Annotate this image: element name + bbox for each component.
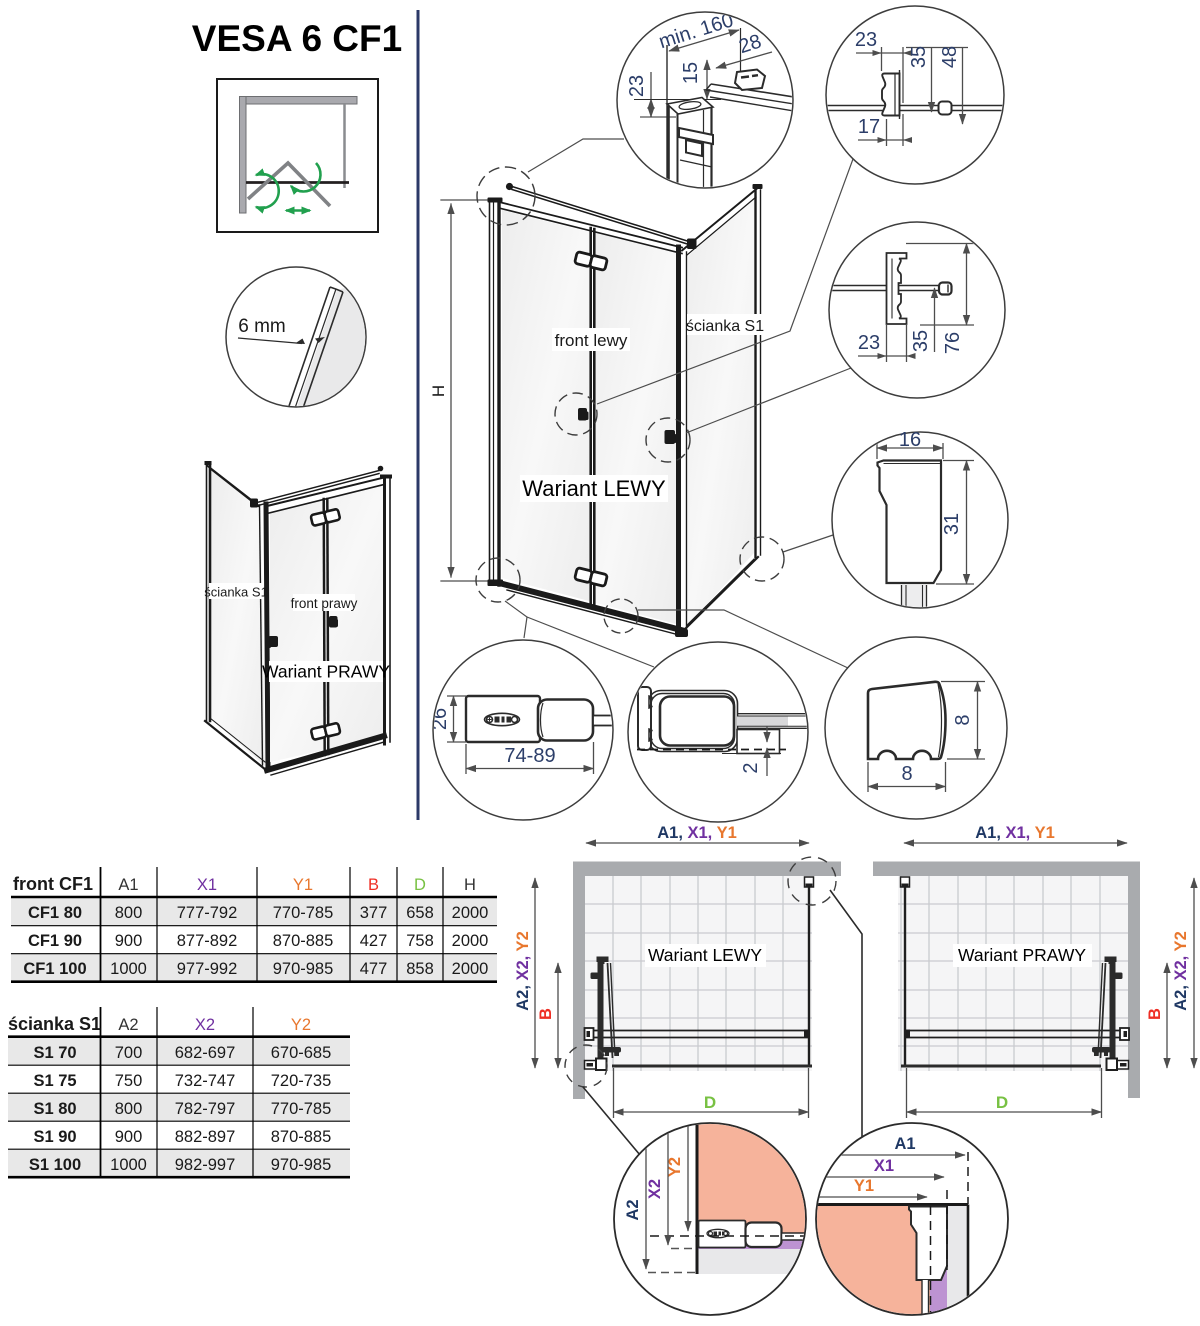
svg-text:76: 76: [942, 332, 964, 354]
svg-text:A2, X2, Y2: A2, X2, Y2: [514, 931, 532, 1011]
svg-text:17: 17: [858, 116, 880, 138]
svg-text:23: 23: [855, 29, 877, 51]
svg-text:X2: X2: [195, 1016, 215, 1034]
svg-text:X1: X1: [197, 876, 217, 894]
svg-text:B: B: [537, 1008, 555, 1020]
svg-text:Wariant LEWY: Wariant LEWY: [522, 476, 666, 501]
svg-text:770-785: 770-785: [271, 1100, 332, 1118]
svg-text:D: D: [704, 1093, 716, 1112]
svg-text:877-892: 877-892: [177, 932, 238, 950]
svg-text:758: 758: [406, 932, 434, 950]
svg-text:750: 750: [115, 1072, 143, 1090]
svg-text:X1: X1: [874, 1157, 894, 1175]
svg-text:H: H: [429, 385, 448, 397]
svg-text:8: 8: [901, 763, 912, 785]
svg-text:ścianka S1: ścianka S1: [8, 1014, 101, 1034]
svg-text:970-985: 970-985: [273, 960, 334, 978]
svg-text:858: 858: [406, 960, 434, 978]
svg-text:2000: 2000: [452, 932, 489, 950]
svg-text:2000: 2000: [452, 960, 489, 978]
svg-text:8: 8: [952, 714, 974, 725]
svg-text:477: 477: [360, 960, 388, 978]
svg-text:Wariant PRAWY: Wariant PRAWY: [262, 662, 390, 682]
svg-text:700: 700: [115, 1044, 143, 1062]
svg-text:377: 377: [360, 904, 388, 922]
svg-text:1000: 1000: [110, 1156, 147, 1174]
svg-text:74-89: 74-89: [504, 745, 555, 767]
svg-text:S1 100: S1 100: [29, 1156, 81, 1174]
svg-text:35: 35: [910, 330, 932, 352]
svg-text:A1: A1: [894, 1135, 915, 1153]
svg-text:B: B: [1146, 1008, 1164, 1020]
svg-text:D: D: [996, 1093, 1008, 1112]
svg-text:Y2: Y2: [291, 1016, 311, 1034]
svg-text:Wariant LEWY: Wariant LEWY: [648, 945, 762, 965]
svg-text:777-792: 777-792: [177, 904, 238, 922]
svg-text:front lewy: front lewy: [555, 331, 628, 350]
svg-text:977-992: 977-992: [177, 960, 238, 978]
svg-text:Y1: Y1: [293, 876, 313, 894]
svg-text:Wariant PRAWY: Wariant PRAWY: [958, 945, 1086, 965]
svg-text:6 mm: 6 mm: [238, 316, 286, 337]
svg-text:ścianka S1: ścianka S1: [686, 318, 764, 335]
svg-text:front CF1: front CF1: [13, 874, 93, 894]
svg-text:A1: A1: [118, 876, 138, 894]
svg-text:870-885: 870-885: [271, 1128, 332, 1146]
svg-text:800: 800: [115, 904, 143, 922]
svg-text:2: 2: [740, 762, 762, 773]
svg-text:982-997: 982-997: [175, 1156, 236, 1174]
svg-text:A2: A2: [624, 1199, 642, 1220]
svg-text:S1 90: S1 90: [33, 1128, 76, 1146]
svg-text:ścianka S1: ścianka S1: [204, 585, 268, 600]
svg-text:front prawy: front prawy: [291, 596, 358, 611]
svg-text:900: 900: [115, 932, 143, 950]
svg-text:D: D: [414, 876, 426, 894]
svg-text:15: 15: [680, 62, 702, 84]
svg-text:Y2: Y2: [666, 1157, 684, 1177]
svg-text:2000: 2000: [452, 904, 489, 922]
svg-text:870-885: 870-885: [273, 932, 334, 950]
svg-text:CF1 100: CF1 100: [23, 960, 86, 978]
svg-text:CF1 90: CF1 90: [28, 932, 82, 950]
svg-text:682-697: 682-697: [175, 1044, 236, 1062]
svg-text:S1 70: S1 70: [33, 1044, 76, 1062]
svg-text:23: 23: [626, 75, 648, 97]
svg-text:970-985: 970-985: [271, 1156, 332, 1174]
svg-text:35: 35: [908, 46, 930, 68]
svg-text:23: 23: [858, 332, 880, 354]
svg-text:S1 80: S1 80: [33, 1100, 76, 1118]
svg-text:A1, X1, Y1: A1, X1, Y1: [657, 824, 737, 842]
svg-text:720-735: 720-735: [271, 1072, 332, 1090]
svg-text:48: 48: [939, 46, 961, 68]
svg-text:A1, X1, Y1: A1, X1, Y1: [975, 824, 1055, 842]
svg-text:732-747: 732-747: [175, 1072, 236, 1090]
svg-text:H: H: [464, 876, 476, 894]
svg-text:900: 900: [115, 1128, 143, 1146]
svg-text:Y1: Y1: [854, 1177, 874, 1195]
svg-text:427: 427: [360, 932, 388, 950]
svg-text:1000: 1000: [110, 960, 147, 978]
svg-text:CF1 80: CF1 80: [28, 904, 82, 922]
svg-text:S1 75: S1 75: [33, 1072, 76, 1090]
svg-text:A2: A2: [118, 1016, 138, 1034]
svg-text:VESA 6 CF1: VESA 6 CF1: [192, 18, 402, 59]
svg-text:B: B: [368, 876, 379, 894]
svg-text:882-897: 882-897: [175, 1128, 236, 1146]
svg-text:A2, X2, Y2: A2, X2, Y2: [1172, 931, 1190, 1011]
svg-text:670-685: 670-685: [271, 1044, 332, 1062]
svg-text:31: 31: [941, 513, 963, 535]
svg-text:658: 658: [406, 904, 434, 922]
svg-text:X2: X2: [646, 1179, 664, 1199]
svg-text:770-785: 770-785: [273, 904, 334, 922]
svg-text:782-797: 782-797: [175, 1100, 236, 1118]
svg-text:800: 800: [115, 1100, 143, 1118]
